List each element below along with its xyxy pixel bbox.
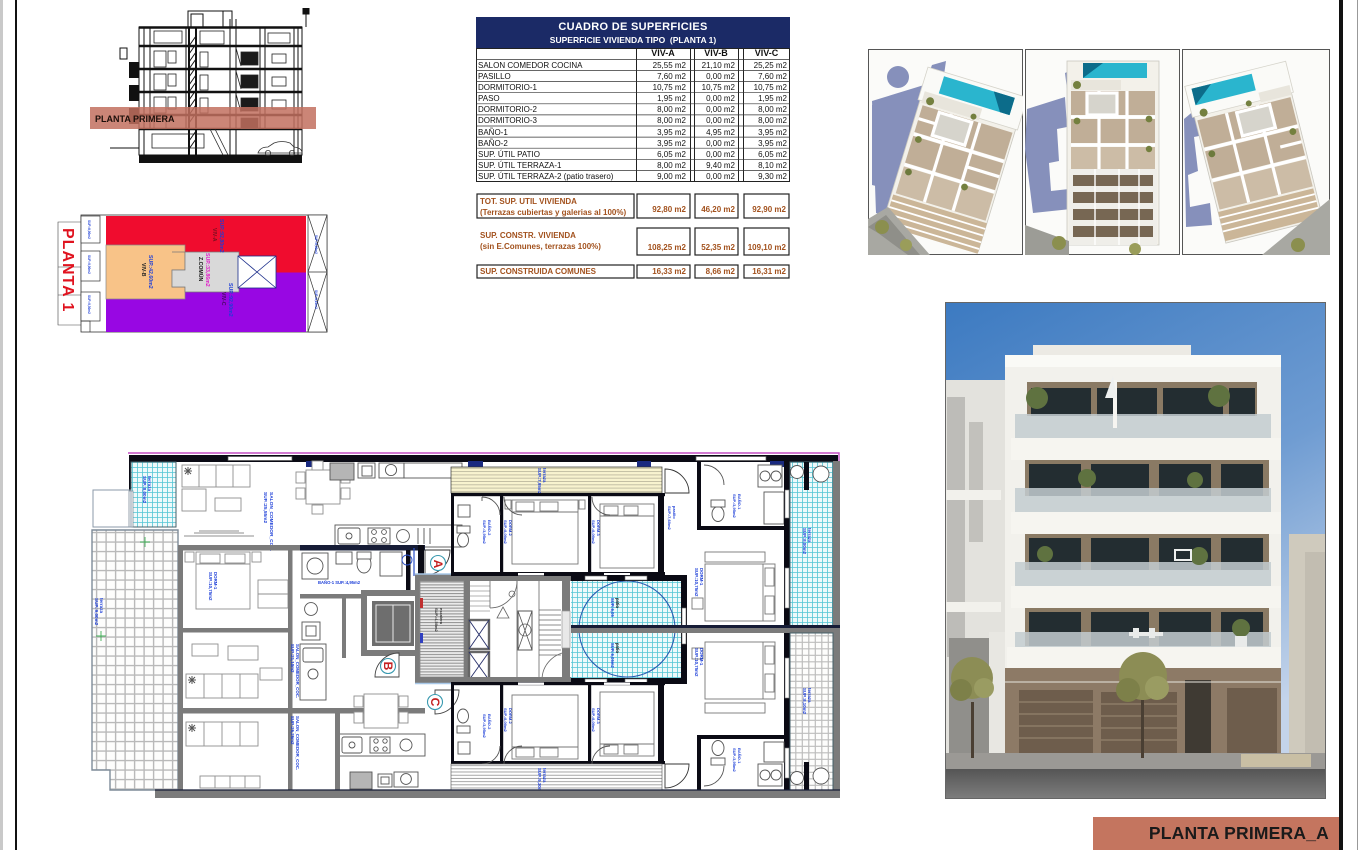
svg-text:A: A [431,560,445,569]
svg-text:SUP.:42,60m2: SUP.:42,60m2 [147,255,153,289]
svg-text:SUP.:8,00m2: SUP.:8,00m2 [314,235,318,254]
svg-text:SUP.:8,00m2: SUP.:8,00m2 [87,220,91,239]
svg-text:SUP.:9,00m2: SUP.:9,00m2 [94,598,99,626]
svg-text:BAÑO-1 SUP.:4,95m2: BAÑO-1 SUP.:4,95m2 [318,580,361,585]
svg-text:SUP.:25,25m2: SUP.:25,25m2 [290,716,295,745]
svg-text:VIV-B: VIV-B [140,263,146,277]
svg-text:SUP.:8,00m2: SUP.:8,00m2 [802,528,807,555]
svg-text:SUP.:92,80m2: SUP.:92,80m2 [218,219,224,253]
svg-text:SUP.:3,95m2: SUP.:3,95m2 [482,520,487,544]
svg-text:SUP.:10,75m2: SUP.:10,75m2 [694,648,699,677]
svg-text:SUP.:8,00m2: SUP.:8,00m2 [503,708,508,732]
svg-text:SALON_COMEDOR_COC.: SALON_COMEDOR_COC. [268,492,274,551]
svg-text:VIV-A: VIV-A [211,228,217,242]
svg-text:SUP.:8,00m2: SUP.:8,00m2 [591,520,596,544]
svg-text:SUP.:8,10m2: SUP.:8,10m2 [314,290,318,309]
svg-text:SUP.:6,05: SUP.:6,05 [610,598,615,617]
svg-text:SUP.:8,00m2: SUP.:8,00m2 [142,476,147,504]
svg-text:SUP.:3,95m2: SUP.:3,95m2 [482,714,487,738]
svg-text:SUP.:8,10m2: SUP.:8,10m2 [802,688,807,715]
svg-text:PLANTA PRIMERA: PLANTA PRIMERA [95,114,175,124]
svg-text:SUP.:92,90m2: SUP.:92,90m2 [227,283,233,317]
svg-text:SUP.:4,50m2: SUP.:4,50m2 [434,608,439,632]
svg-text:SUP.:7,95m2: SUP.:7,95m2 [537,468,542,495]
svg-text:SUP.:9,30m2: SUP.:9,30m2 [87,295,91,314]
svg-text:SUP.:9,00m2: SUP.:9,00m2 [87,255,91,274]
svg-text:SUP.:8,00m2: SUP.:8,00m2 [503,520,508,544]
svg-text:VIV-C: VIV-C [220,292,226,306]
svg-text:SUP.:21,10m2: SUP.:21,10m2 [290,644,295,673]
svg-text:Z.COMÚN: Z.COMÚN [197,257,204,281]
svg-text:SUP.:3,95m2: SUP.:3,95m2 [732,494,737,518]
svg-text:SUP.:8,00m2: SUP.:8,00m2 [591,708,596,732]
svg-text:B: B [381,662,395,671]
svg-text:SUP.:25,55m2: SUP.:25,55m2 [262,492,268,523]
svg-text:SUP.:7,60m2: SUP.:7,60m2 [667,506,672,530]
svg-text:SUP.:3,95m2: SUP.:3,95m2 [732,748,737,772]
svg-text:SUP.:6,05m2: SUP.:6,05m2 [610,643,615,669]
svg-text:PLANTA 1: PLANTA 1 [59,228,76,312]
svg-text:SUP.:10,75m2: SUP.:10,75m2 [694,568,699,597]
svg-text:C: C [428,698,442,707]
svg-text:SUP.:33,86m2: SUP.:33,86m2 [204,253,210,287]
svg-text:SUP.:10,75m2: SUP.:10,75m2 [208,572,213,601]
